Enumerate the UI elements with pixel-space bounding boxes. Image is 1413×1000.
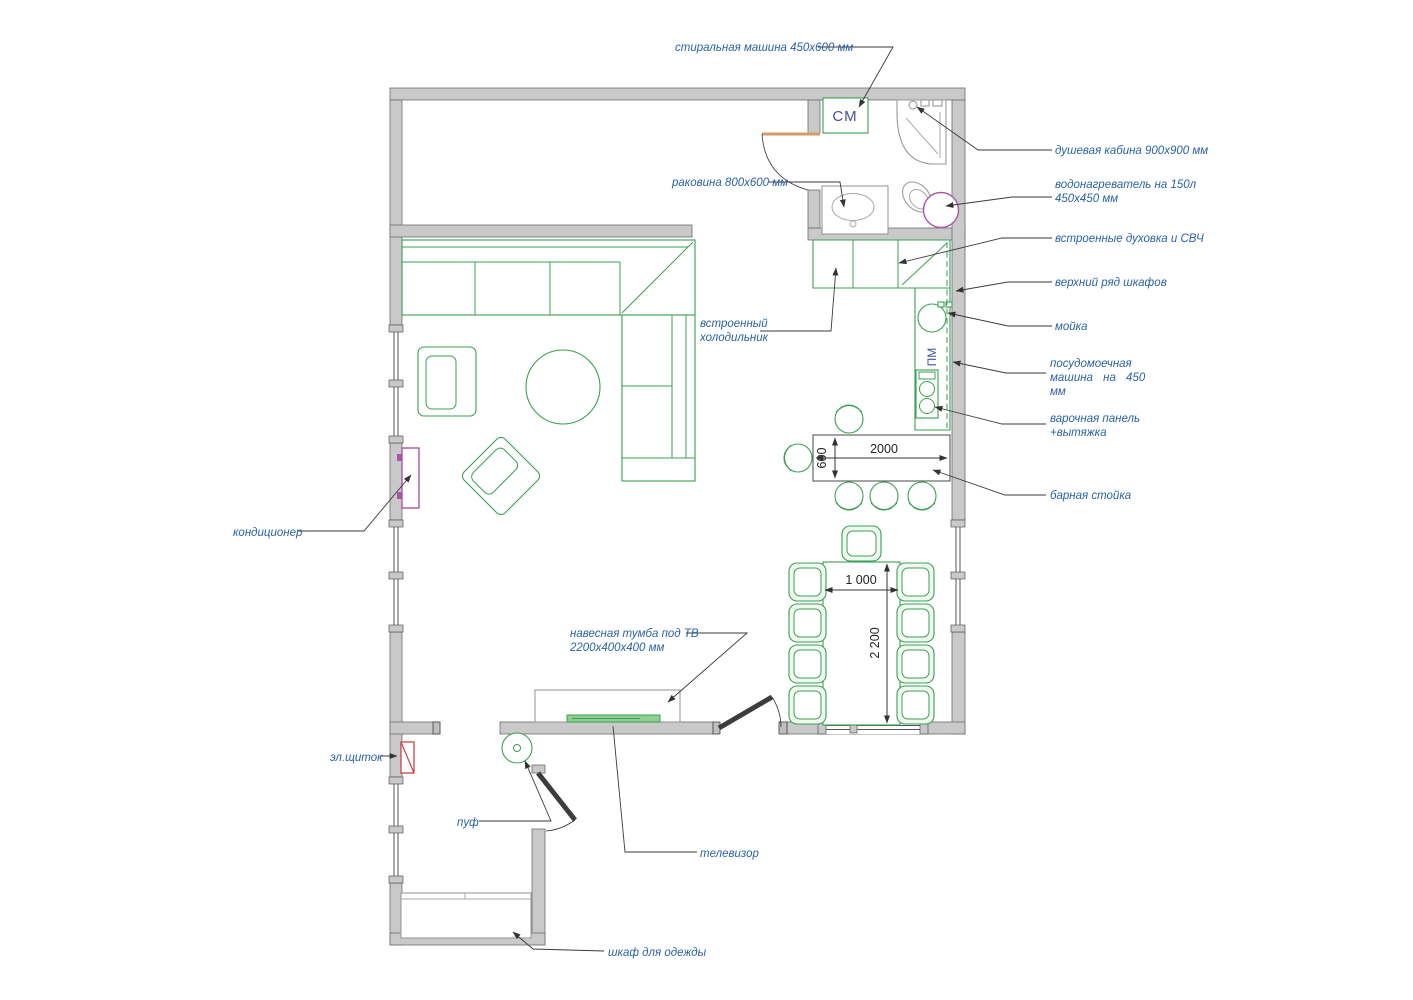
label-fridge-1: встроенный [700,318,768,330]
washing-machine-marker: СМ [832,108,857,125]
wall-bath-left-lower [808,190,820,228]
floor-plan-page: СМ ПМ [0,0,1413,1000]
label-water-heater-1: водонагреватель на 150л [1055,179,1197,191]
label-dishwasher-2: машина на 450 [1050,372,1146,384]
dim-table-width: 1 000 [845,573,876,587]
label-bath-sink: раковина 800х600 мм [671,177,788,189]
dim-table-length: 2 200 [868,627,882,658]
bar-stool [870,482,898,510]
label-wardrobe: шкаф для одежды [608,947,707,959]
coffee-table [526,350,600,424]
living-room [397,240,695,938]
label-washing-machine: стиральная машина 450х600 мм [675,42,853,54]
label-tv-cabinet-2: 2200х400х400 мм [569,642,665,654]
wall-tv [500,722,713,734]
wall-right-lower [952,632,965,734]
dining-chair [842,526,881,561]
wall-left-upper [390,100,402,325]
wall-entry-right [532,829,545,945]
leader-upper-cabinets [956,282,1052,291]
label-dishwasher-3: мм [1050,386,1066,398]
kitchen-sink [918,304,946,332]
electric-panel [401,742,414,773]
entry-door-leaf [538,773,575,820]
armchair [418,347,476,416]
label-oven: встроенные духовка и СВЧ [1055,233,1204,245]
shower-cabin [897,100,946,164]
dining-chair [897,563,934,601]
label-kitchen-sink: мойка [1055,321,1088,333]
annotations: стиральная машина 450х600 мм душевая каб… [233,42,1208,959]
bar-stool [908,482,936,510]
dining-chair [789,686,826,724]
tv [567,715,660,722]
pouf [502,733,532,763]
dining-area [789,526,934,725]
wardrobe [401,893,531,938]
label-shower: душевая кабина 900х900 мм [1055,145,1208,157]
door-jamb [713,722,720,734]
wall-bottom-stub [390,722,440,734]
armchair-rotated [460,435,542,517]
label-bar: барная стойка [1050,490,1131,502]
door-jamb [433,722,440,734]
label-upper-cabinets: верхний ряд шкафов [1055,277,1167,289]
wall-entry-stub [532,765,545,773]
floor-plan-drawing: СМ ПМ [0,0,1413,1000]
water-heater [924,193,959,228]
bar-stool [835,405,863,433]
dining-chair [789,604,826,642]
label-cooktop-1: варочная панель [1050,413,1140,425]
wall-bath-left-upper [808,100,820,133]
label-fridge-2: холодильник [699,332,769,344]
label-panel: эл.щиток [330,752,383,764]
door-jamb [779,722,787,734]
dim-bar-length: 2000 [870,442,898,456]
label-ac: кондиционер [233,527,303,539]
wall-room1-bottom [390,225,692,237]
bathroom: СМ [822,98,959,234]
leader-dishwasher [953,362,1046,373]
dining-chair [789,645,826,683]
wall-top [390,88,965,100]
shower-faucet [909,101,917,109]
balcony-door-leaf [719,697,772,728]
bar-stool [784,444,812,472]
wall-right-upper [952,100,965,520]
label-tv-cabinet-1: навесная тумба под ТВ [570,628,699,640]
dining-chair [789,563,826,601]
leader-tv [613,726,697,852]
dishwasher-marker: ПМ [925,348,939,367]
bar-stool [835,482,863,510]
leader-tv-cabinet [668,633,747,702]
kitchen: ПМ [813,240,952,430]
dining-chair [897,686,934,724]
dining-chair [897,604,934,642]
dining-chair [897,645,934,683]
entry-door-arc [546,820,575,831]
label-water-heater-2: 450х450 мм [1055,193,1118,205]
wall-left-mid [390,632,402,777]
label-cooktop-2: +вытяжка [1050,427,1107,439]
label-pouf: пуф [457,817,479,829]
label-tv: телевизор [700,848,759,860]
label-dishwasher-1: посудомоечная [1050,358,1132,370]
